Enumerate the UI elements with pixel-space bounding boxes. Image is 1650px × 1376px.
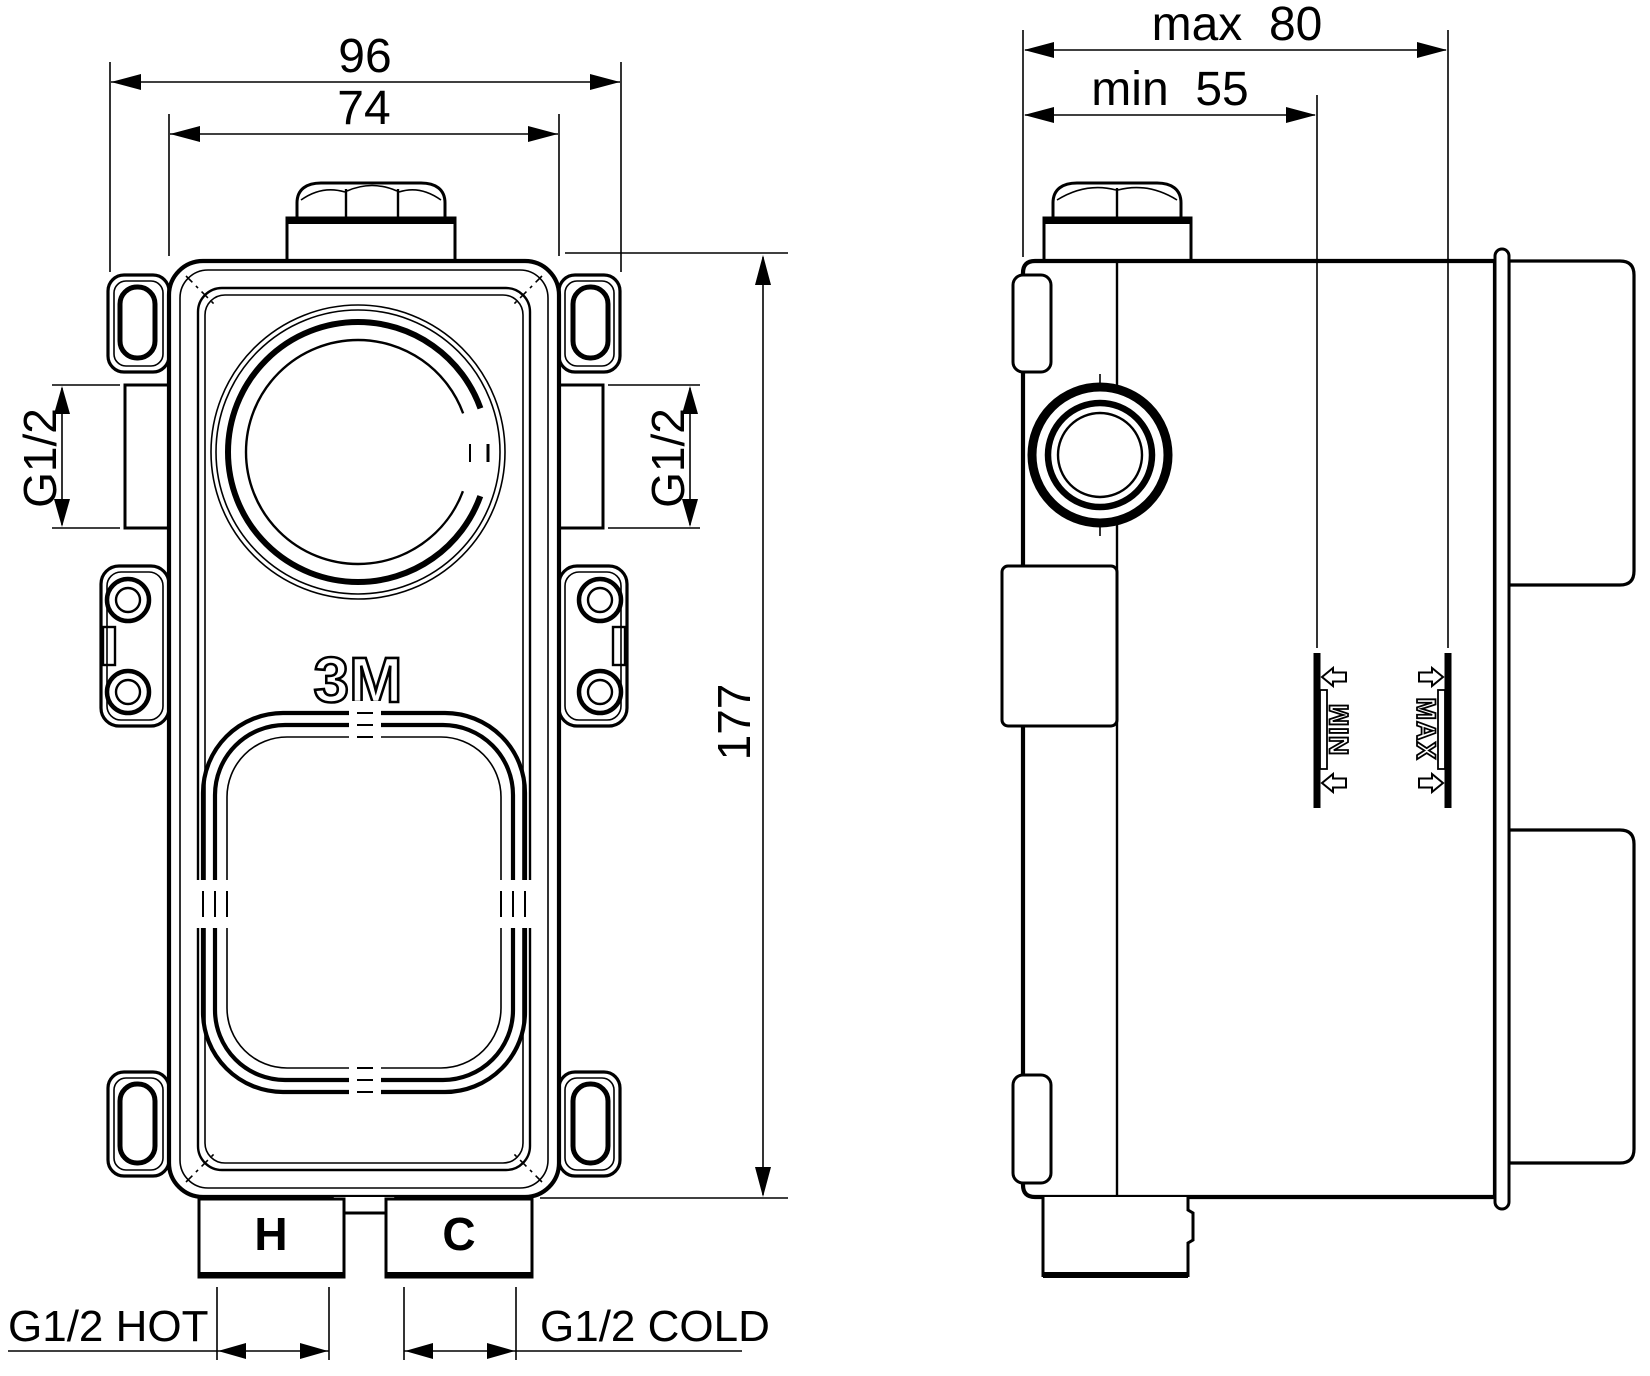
wall-plate <box>1495 249 1509 1209</box>
bracket-left-screw-top <box>107 579 149 621</box>
dim-depth-min-value: min 55 <box>1091 63 1248 116</box>
dim-arrow-left-icon <box>111 74 141 90</box>
rear-block-lower <box>1509 830 1634 1163</box>
nut-base <box>287 218 455 263</box>
hot-inlet-label: G1/2 HOT <box>8 1302 209 1351</box>
dim-thread-right-value: G1/2 <box>642 408 694 508</box>
dim-arrow-right-icon <box>1286 107 1316 123</box>
cold-inlet-label: G1/2 COLD <box>540 1302 770 1351</box>
nut-base <box>1044 218 1191 263</box>
bracket-right-screw-top <box>579 579 621 621</box>
dim-width-inner-value: 74 <box>337 82 390 135</box>
side-view: max 80 min 55 NIM MAX <box>1002 0 1634 1277</box>
dim-arrow-right-icon <box>528 126 558 142</box>
side-bottom-port <box>1043 1197 1193 1277</box>
dim-arrow-right-icon <box>487 1343 515 1359</box>
side-port-right <box>559 385 603 528</box>
rear-block-upper <box>1509 261 1634 585</box>
dim-arrow-down-icon <box>755 1167 771 1197</box>
hot-port-letter: H <box>254 1208 287 1260</box>
bracket-right-screw-bottom <box>579 671 621 713</box>
dim-arrow-right-icon <box>300 1343 328 1359</box>
hot-port: H <box>199 1199 344 1277</box>
side-ear-bottom <box>1013 1075 1051 1183</box>
dim-arrow-left-icon <box>1024 42 1054 58</box>
cold-port: C <box>386 1199 532 1277</box>
ear-bottom-left-slot <box>120 1084 155 1163</box>
dim-width-overall-value: 96 <box>338 30 391 83</box>
max-marker-text: MAX <box>1411 698 1441 761</box>
dim-arrow-up-icon <box>755 255 771 285</box>
nut-cap <box>297 183 445 218</box>
valve-rough-in-drawing: 3M H <box>0 0 1650 1376</box>
dim-arrow-right-icon <box>590 74 620 90</box>
dim-arrow-left-icon <box>405 1343 433 1359</box>
dim-cold-inlet: G1/2 COLD <box>404 1287 770 1360</box>
side-port-left <box>125 385 169 528</box>
ear-bottom-right-slot <box>573 1084 608 1163</box>
ear-top-right-slot <box>573 287 608 358</box>
min-marker-text: NIM <box>1324 703 1354 756</box>
side-bracket-block <box>1002 566 1117 726</box>
dim-depth-max-value: max 80 <box>1152 0 1323 51</box>
dim-arrow-left-icon <box>218 1343 246 1359</box>
dim-thread-right: G1/2 <box>608 385 700 528</box>
ear-top-left-slot <box>120 287 155 358</box>
front-view: 3M H <box>8 30 788 1360</box>
dim-height-value: 177 <box>708 684 760 761</box>
dim-arrow-right-icon <box>1417 42 1447 58</box>
side-ear-top <box>1013 275 1051 372</box>
technical-drawing-page: 3M H <box>0 0 1650 1376</box>
dim-arrow-left-icon <box>1024 107 1054 123</box>
front-hex-nut <box>287 183 455 263</box>
side-hex-nut <box>1044 183 1191 263</box>
side-bottom-port-fill <box>1043 1197 1188 1277</box>
dim-thread-left-value: G1/2 <box>14 408 66 508</box>
dim-arrow-left-icon <box>170 126 200 142</box>
cold-port-letter: C <box>442 1208 475 1260</box>
boss-ring-outer <box>1032 387 1168 523</box>
bracket-left-screw-bottom <box>107 671 149 713</box>
dim-thread-left: G1/2 <box>14 385 120 528</box>
dim-hot-inlet: G1/2 HOT <box>8 1287 329 1360</box>
